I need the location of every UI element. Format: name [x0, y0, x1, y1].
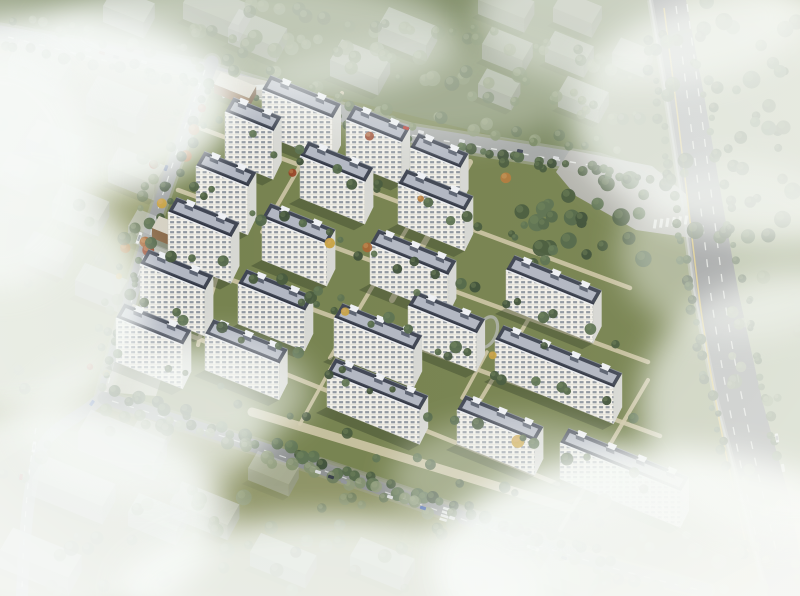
aerial-rendering-page [0, 0, 800, 596]
scene-root [0, 0, 800, 596]
aerial-site-rendering [0, 0, 800, 596]
warm-light [0, 0, 800, 596]
